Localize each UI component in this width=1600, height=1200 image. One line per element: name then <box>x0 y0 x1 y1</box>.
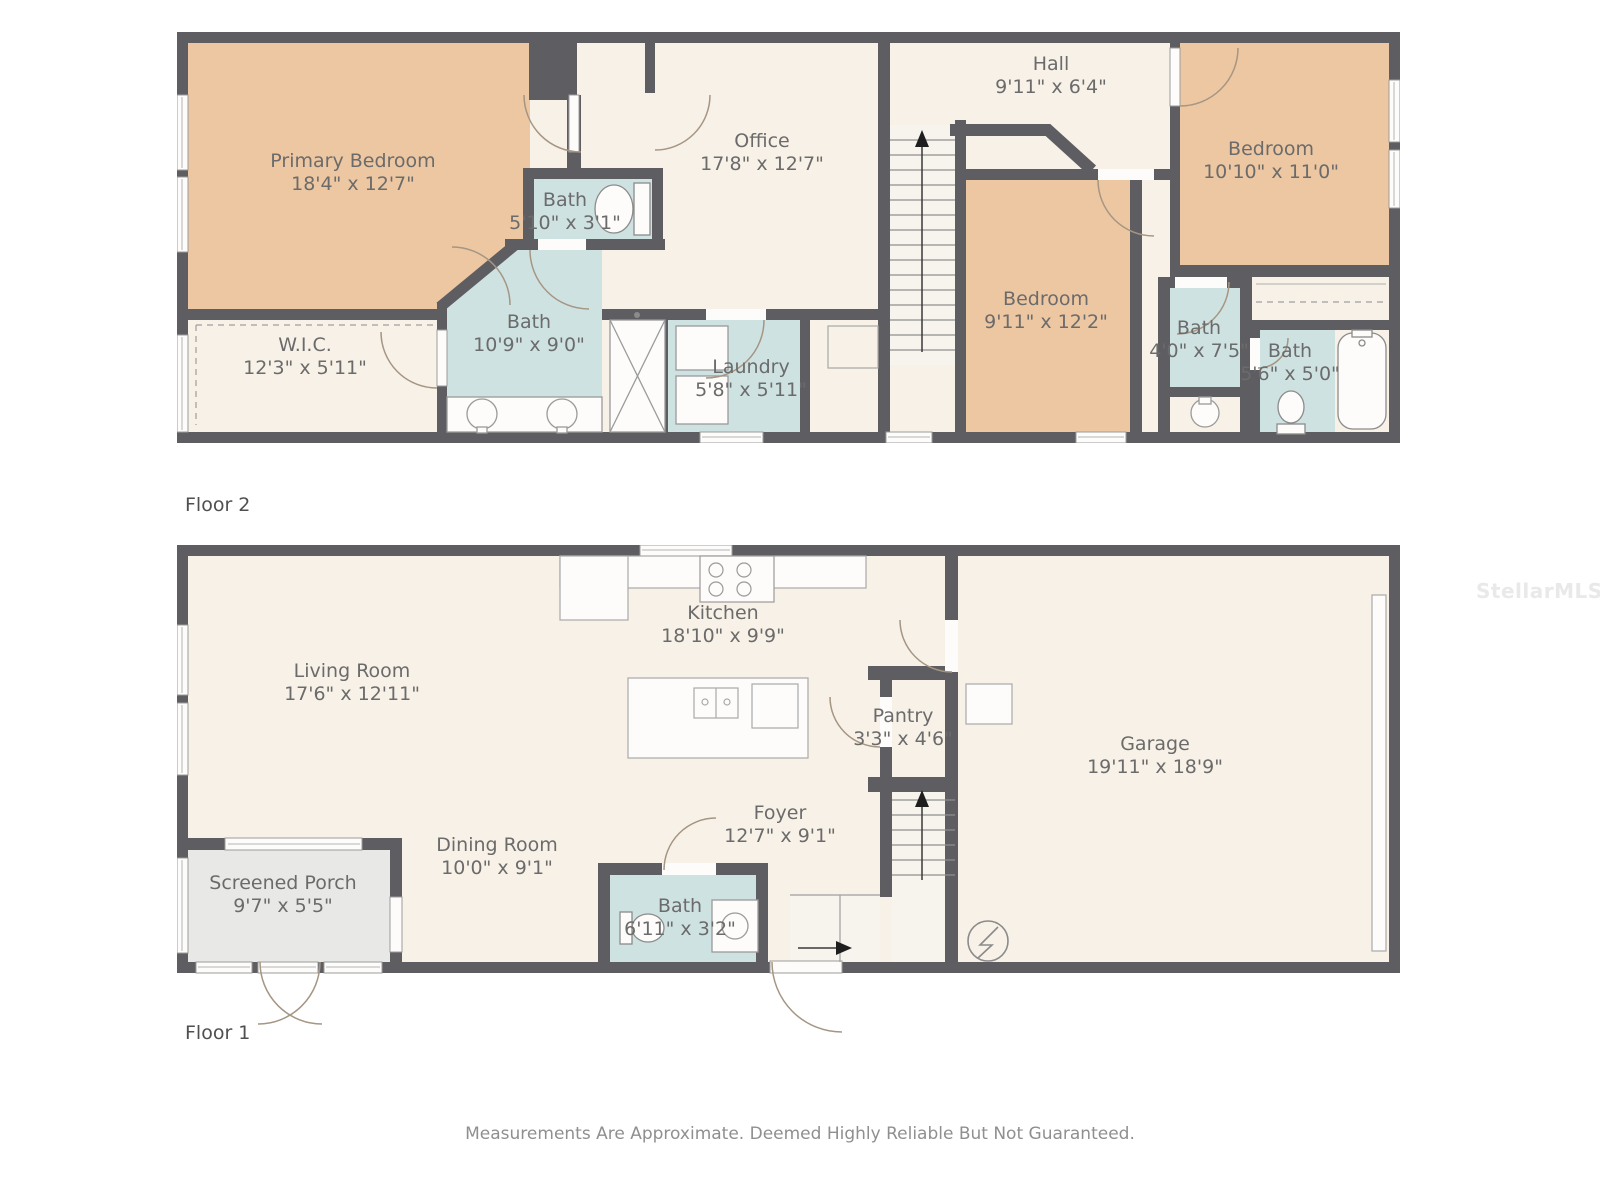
room-label-hall: Hall 9'11" x 6'4" <box>995 53 1107 99</box>
room-label-pantry: Pantry 3'3" x 4'6" <box>853 705 953 751</box>
room-label-bath-main: Bath 10'9" x 9'0" <box>473 311 585 357</box>
room-label-kitchen: Kitchen 18'10" x 9'9" <box>661 602 785 648</box>
room-label-primary-bedroom: Primary Bedroom 18'4" x 12'7" <box>270 150 435 196</box>
kitchen-island <box>628 678 808 758</box>
room-label-bedroom-middle: Bedroom 9'11" x 12'2" <box>984 288 1108 334</box>
room-label-dining-room: Dining Room 10'0" x 9'1" <box>436 834 557 880</box>
floor2-label: Floor 2 <box>185 494 250 516</box>
double-vanity-sinks <box>447 397 602 433</box>
toilet-bath-tub <box>1277 391 1305 434</box>
room-label-laundry: Laundry 5'8" x 5'11" <box>695 356 807 402</box>
floorplan-page: Primary Bedroom 18'4" x 12'7" W.I.C. 12'… <box>0 0 1600 1200</box>
room-label-bath-tub: Bath 5'6" x 5'0" <box>1240 340 1340 386</box>
room-label-bath-ensuite: Bath 5'10" x 3'1" <box>509 189 621 235</box>
room-label-bedroom-right: Bedroom 10'10" x 11'0" <box>1203 138 1339 184</box>
shower <box>610 312 665 432</box>
room-label-garage: Garage 19'11" x 18'9" <box>1087 733 1223 779</box>
stair-landing <box>790 895 880 962</box>
floor1-label: Floor 1 <box>185 1022 250 1044</box>
room-label-bath-f1: Bath 6'11" x 3'2" <box>624 895 736 941</box>
room-label-foyer: Foyer 12'7" x 9'1" <box>724 802 836 848</box>
stellar-mls-watermark: StellarMLS <box>1476 579 1600 603</box>
bathtub <box>1338 330 1386 429</box>
room-label-bath-hall: Bath 4'0" x 7'5" <box>1149 317 1249 363</box>
stove <box>700 556 774 602</box>
disclaimer-text: Measurements Are Approximate. Deemed Hig… <box>465 1124 1135 1144</box>
room-label-wic: W.I.C. 12'3" x 5'11" <box>243 334 367 380</box>
garage-shelf <box>966 684 1012 724</box>
room-label-living-room: Living Room 17'6" x 12'11" <box>284 660 420 706</box>
room-label-office: Office 17'8" x 12'7" <box>700 130 824 176</box>
wall-chunk <box>529 43 577 100</box>
garage-door <box>1372 595 1386 951</box>
floor1-plan <box>177 545 1400 1035</box>
room-label-screened-porch: Screened Porch 9'7" x 5'5" <box>209 872 356 918</box>
